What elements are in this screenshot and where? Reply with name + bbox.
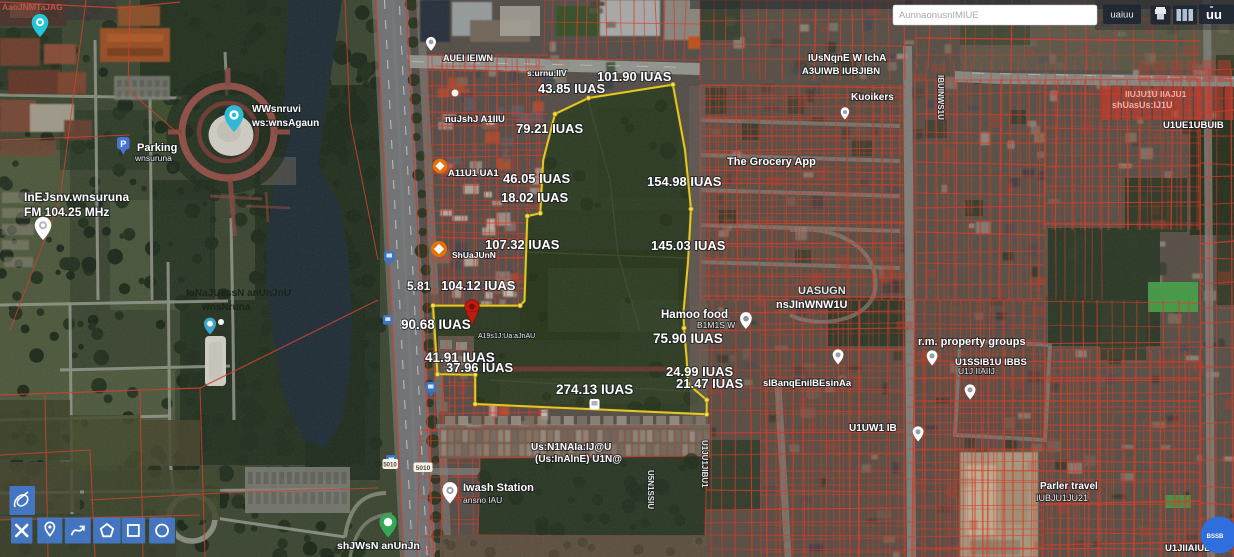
svg-text:274.13 IUAS: 274.13 IUAS <box>556 382 633 397</box>
svg-text:nsJInWNW1U: nsJInWNW1U <box>776 299 848 311</box>
svg-text:WWsnruvi: WWsnruvi <box>252 104 301 115</box>
svg-text:s:urnu:IIV: s:urnu:IIV <box>527 68 567 78</box>
svg-text:IoNaJUsssN anUnJnU: IoNaJUsssN anUnJnU <box>186 288 291 299</box>
svg-text:U1J IIAIIJ: U1J IIAIIJ <box>958 366 995 376</box>
svg-text:(Us:InAlnE) U1N@: (Us:InAlnE) U1N@ <box>535 454 622 465</box>
svg-text:145.03 IUAS: 145.03 IUAS <box>651 238 726 253</box>
svg-text:A19s1J:Ua:aJnAU: A19s1J:Ua:aJnAU <box>478 333 535 340</box>
svg-text:uaiuu: uaiuu <box>1110 10 1133 21</box>
svg-text:101.90 IUAS: 101.90 IUAS <box>597 69 672 84</box>
svg-text:shUasUs:IJ1U: shUasUs:IJ1U <box>1112 100 1173 110</box>
svg-text:ShUaJUnN: ShUaJUnN <box>452 250 496 260</box>
svg-text:IBUINWS1U: IBUINWS1U <box>936 75 945 120</box>
svg-text:BSSB: BSSB <box>1207 534 1224 540</box>
svg-text:46.05 IUAS: 46.05 IUAS <box>503 171 571 186</box>
svg-text:Parler travel: Parler travel <box>1040 481 1098 492</box>
svg-text:UASUGN: UASUGN <box>798 285 846 297</box>
svg-text:Kuoikers: Kuoikers <box>851 92 894 103</box>
svg-text:The Grocery App: The Grocery App <box>727 156 816 168</box>
svg-text:FM 104.25 MHz: FM 104.25 MHz <box>24 205 109 219</box>
svg-text:B1M1S W: B1M1S W <box>697 320 735 330</box>
svg-text:5.81: 5.81 <box>407 279 431 293</box>
svg-text:wnsuruna: wnsuruna <box>134 153 172 163</box>
svg-text:AunnaonusnIMIUE: AunnaonusnIMIUE <box>899 10 979 21</box>
svg-text:AUEI IEIWN: AUEI IEIWN <box>443 53 493 63</box>
svg-text:IIUJU1U IIAJU1: IIUJU1U IIAJU1 <box>1125 89 1187 99</box>
svg-text:P: P <box>120 139 126 149</box>
svg-text:shJWsN anUnJn: shJWsN anUnJn <box>337 540 420 552</box>
svg-text:A3UIWB IUBJIBN: A3UIWB IUBJIBN <box>802 66 880 77</box>
svg-text:43.85 IUAS: 43.85 IUAS <box>538 81 606 96</box>
svg-text:IUBJU1JU21: IUBJU1JU21 <box>1036 493 1088 503</box>
svg-text:U1UW1 IB: U1UW1 IB <box>849 423 897 434</box>
svg-text:5010: 5010 <box>383 463 397 469</box>
svg-text:Iwash Station: Iwash Station <box>463 482 534 494</box>
svg-text:ws:wnsAgaun: ws:wnsAgaun <box>251 118 319 129</box>
svg-text:154.98 IUAS: 154.98 IUAS <box>647 174 722 189</box>
svg-text:104.12 IUAS: 104.12 IUAS <box>441 278 516 293</box>
svg-text:90.68 IUAS: 90.68 IUAS <box>401 317 471 332</box>
svg-text:uu: uu <box>1206 7 1222 22</box>
svg-text:r.m. property groups: r.m. property groups <box>918 336 1026 348</box>
svg-text:wnsNruna: wnsNruna <box>201 302 251 313</box>
svg-text:sIBanqEnilBEsinAa: sIBanqEnilBEsinAa <box>763 378 852 389</box>
svg-text:U5N1SSIU: U5N1SSIU <box>646 470 655 509</box>
svg-text:AaoJNMTaJAG: AaoJNMTaJAG <box>2 2 63 12</box>
svg-text:IUsNqnE W IchA: IUsNqnE W IchA <box>808 53 886 64</box>
svg-text:U1UE1UBUIB: U1UE1UBUIB <box>1163 120 1224 131</box>
svg-text:A11U1 UA1: A11U1 UA1 <box>448 168 499 179</box>
svg-text:37.96 IUAS: 37.96 IUAS <box>446 360 514 375</box>
svg-text:18.02 IUAS: 18.02 IUAS <box>501 190 569 205</box>
svg-text:nuJshJ A1IIU: nuJshJ A1IIU <box>445 114 505 125</box>
svg-text:U1JU1JIBU1: U1JU1JIBU1 <box>700 440 709 488</box>
svg-text:107.32 IUAS: 107.32 IUAS <box>485 237 560 252</box>
svg-text:5010: 5010 <box>416 465 431 472</box>
svg-text:21.47 IUAS: 21.47 IUAS <box>676 376 744 391</box>
svg-text:79.21 IUAS: 79.21 IUAS <box>516 121 584 136</box>
svg-text:Us:N1NAIa:IJ@U: Us:N1NAIa:IJ@U <box>531 442 611 453</box>
svg-text:75.90 IUAS: 75.90 IUAS <box>653 331 723 346</box>
svg-text:ansno lAU: ansno lAU <box>463 495 502 505</box>
svg-text:InEJsnv.wnsuruna: InEJsnv.wnsuruna <box>24 190 129 204</box>
